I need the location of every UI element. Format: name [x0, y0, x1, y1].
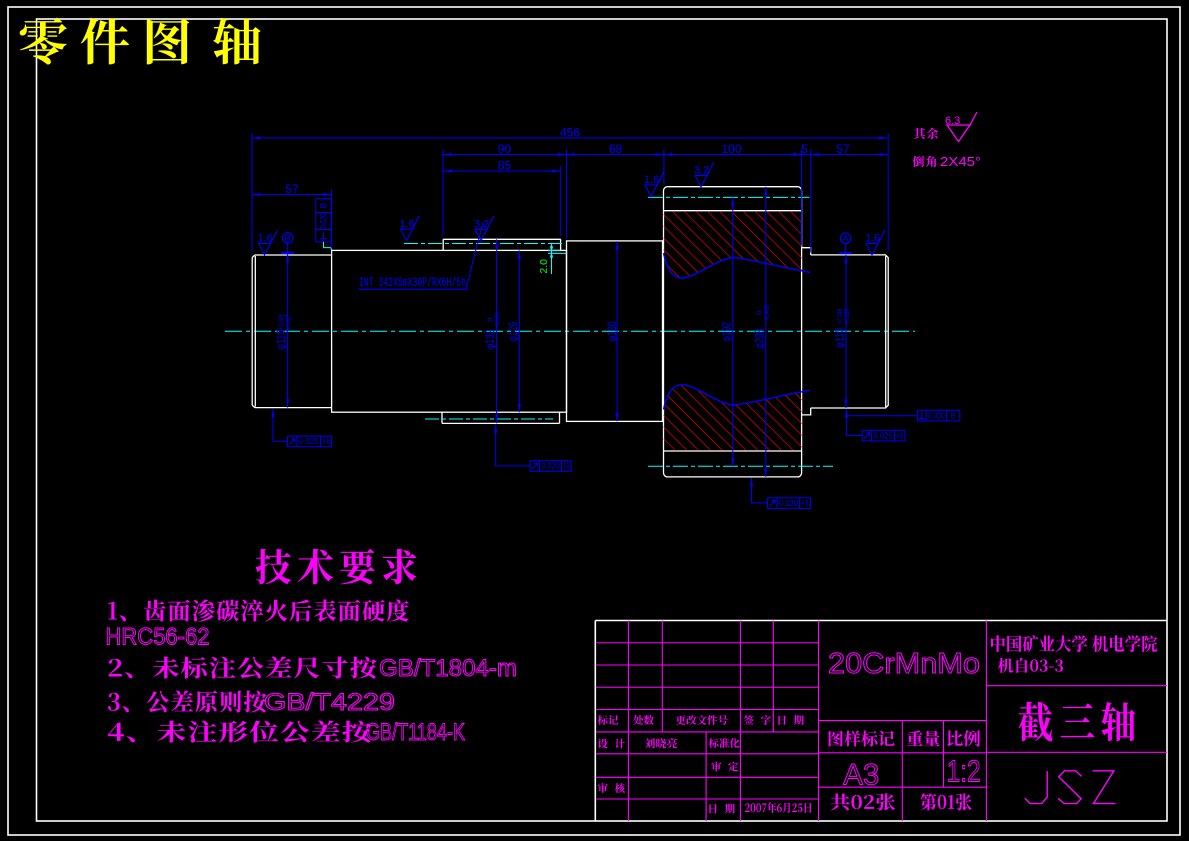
svg-text:0.030: 0.030	[928, 411, 945, 420]
svg-text:+0.027: +0.027	[284, 315, 293, 330]
svg-text:-0.040: -0.040	[493, 312, 502, 327]
svg-text:2X45°: 2X45°	[940, 155, 981, 169]
svg-text:A-B: A-B	[322, 437, 330, 446]
svg-text:2.0: 2.0	[538, 259, 550, 274]
svg-text:5: 5	[801, 142, 808, 156]
svg-text:0.025: 0.025	[873, 431, 893, 440]
svg-text:A-B: A-B	[801, 499, 808, 508]
svg-text:1.6: 1.6	[644, 174, 659, 186]
svg-text:HRC56-62: HRC56-62	[106, 624, 210, 651]
svg-text:0.020: 0.020	[541, 462, 560, 471]
svg-text:B: B	[285, 233, 291, 244]
svg-text:A3: A3	[843, 758, 879, 791]
svg-text:0.030: 0.030	[779, 499, 799, 508]
svg-text:φ126: φ126	[506, 322, 520, 342]
svg-text:0.020: 0.020	[319, 213, 329, 228]
svg-text:100: 100	[721, 142, 741, 156]
svg-text:+0.023: +0.023	[842, 309, 851, 324]
svg-text:456: 456	[560, 126, 580, 140]
svg-text:3.2: 3.2	[694, 164, 709, 176]
svg-text:INT 342X5mX30P/RX6H/5h: INT 342X5mX30P/RX6H/5h	[359, 276, 466, 290]
svg-text:GB/T1804-m: GB/T1804-m	[379, 655, 517, 682]
svg-text:GB/T4229: GB/T4229	[264, 689, 395, 716]
svg-text:90: 90	[498, 142, 512, 156]
svg-text:B: B	[951, 411, 956, 420]
svg-text:GB/T1184-K: GB/T1184-K	[366, 719, 465, 746]
svg-text:1.6: 1.6	[865, 232, 880, 244]
svg-text:57: 57	[836, 142, 850, 156]
svg-text:85: 85	[498, 159, 512, 173]
svg-text:A-B: A-B	[896, 431, 903, 440]
svg-text:φ132: φ132	[483, 329, 497, 349]
svg-text:φ130: φ130	[605, 321, 619, 341]
svg-text:57: 57	[285, 182, 299, 196]
svg-text:6.3: 6.3	[945, 115, 960, 127]
svg-text:B: B	[319, 202, 329, 208]
svg-text:A-B: A-B	[563, 462, 569, 471]
svg-text:φ192: φ192	[719, 322, 733, 342]
svg-text:A: A	[842, 234, 849, 245]
svg-text:1:2: 1:2	[947, 754, 981, 789]
svg-text:φ110: φ110	[274, 329, 288, 349]
svg-text:1.6: 1.6	[258, 233, 273, 245]
svg-text:φ208: φ208	[752, 329, 766, 349]
svg-text:-0.460: -0.460	[762, 305, 771, 320]
svg-text:φ110: φ110	[833, 328, 847, 348]
svg-text:0.025: 0.025	[299, 437, 320, 446]
svg-text:1.6: 1.6	[400, 218, 415, 230]
svg-text:20CrMnMo: 20CrMnMo	[828, 648, 980, 680]
svg-text:68: 68	[609, 142, 623, 156]
